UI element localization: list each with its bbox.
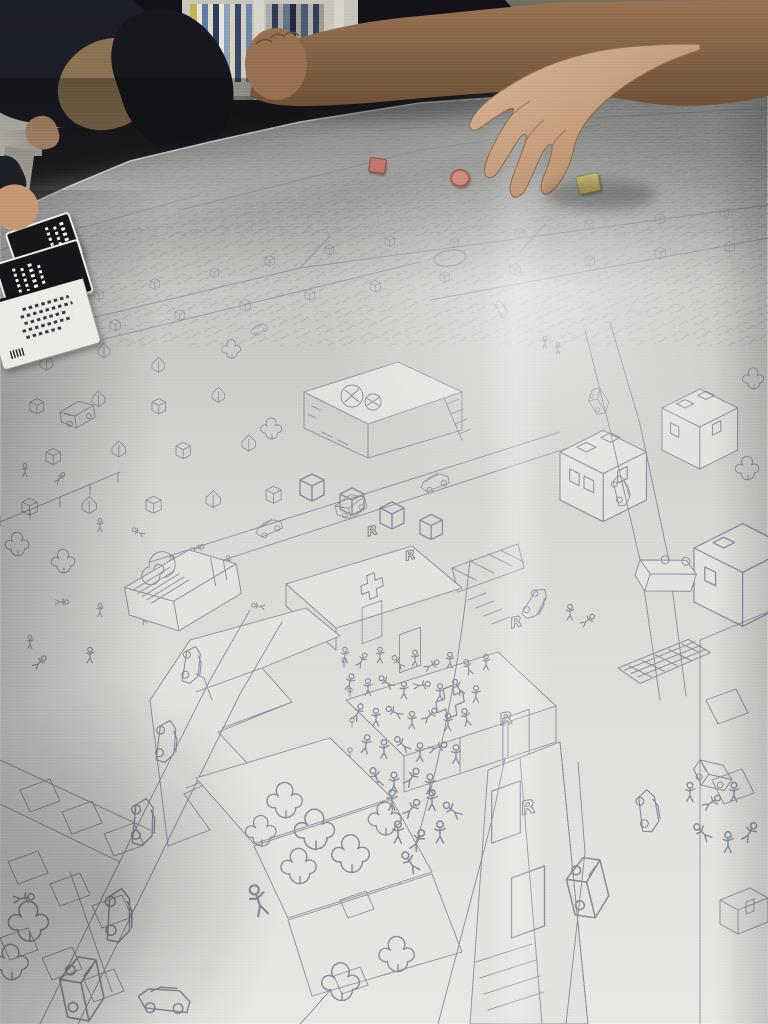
top-player-arms (0, 0, 768, 260)
r-letter: R (499, 708, 512, 731)
r-letter: R (521, 794, 536, 820)
r-letter: R (367, 523, 377, 540)
r-letter: R (510, 612, 522, 633)
fist (245, 28, 307, 100)
hand-contact-shadow (546, 180, 656, 210)
r-letter: R (405, 548, 415, 565)
tabletop-photo: R R R (0, 0, 768, 1024)
card-barcode (10, 347, 26, 359)
